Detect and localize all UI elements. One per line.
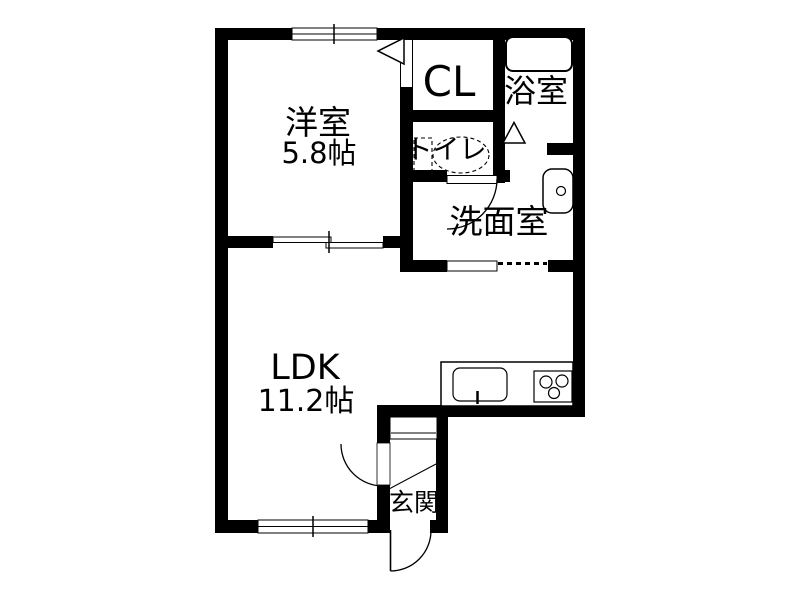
wall-closet-bottom xyxy=(413,110,493,122)
wall-bathroom-bottom xyxy=(547,143,585,155)
room-label-entrance: 玄関 xyxy=(389,488,439,517)
floorplan-canvas: 洋室 5.8帖 CL 浴室 トイレ 洗面室 LDK 11.2帖 玄関 xyxy=(0,0,800,600)
wall-washroom-bottom-left xyxy=(400,260,447,272)
outer-wall-right xyxy=(573,28,585,417)
outer-wall-left xyxy=(215,28,228,533)
bathtub-icon xyxy=(506,37,572,71)
kitchen-sink-icon xyxy=(453,368,507,404)
wall-toilet-bottom-right xyxy=(497,170,510,182)
gas-stove-icon xyxy=(534,371,572,402)
entrance-step-line xyxy=(389,464,436,489)
room-label-bathroom: 浴室 xyxy=(504,72,568,110)
wall-entrance-bottom-right xyxy=(430,520,448,533)
room-label-washroom: 洗面室 xyxy=(450,202,549,241)
ldk-window-icon xyxy=(258,516,368,537)
shoe-cabinet-icon xyxy=(390,417,437,439)
wall-western-corridor xyxy=(400,87,413,272)
entrance-door-icon xyxy=(390,520,431,571)
room-label-closet: CL xyxy=(423,57,476,106)
closet-folding-door-icon xyxy=(378,38,413,87)
room-area-ldk: 11.2帖 xyxy=(258,384,355,419)
washroom-sliding-door-icon xyxy=(447,261,547,271)
western-window-icon xyxy=(292,24,377,44)
wall-western-ldk-left xyxy=(215,236,273,248)
room-label-toilet: トイレ xyxy=(406,135,487,166)
floorplan-drawing: 洋室 5.8帖 CL 浴室 トイレ 洗面室 LDK 11.2帖 玄関 xyxy=(0,0,800,600)
western-sliding-door-icon xyxy=(273,231,383,253)
room-label-ldk: LDK xyxy=(270,348,340,388)
entrance-inner-door-icon xyxy=(341,443,390,486)
room-area-western: 5.8帖 xyxy=(281,136,356,170)
outer-wall-southeast xyxy=(377,405,585,417)
bathroom-folding-door-icon xyxy=(503,123,525,144)
wall-washroom-bottom-right xyxy=(548,260,585,272)
kitchen-counter-icon xyxy=(441,362,573,406)
wall-entrance-left-upper xyxy=(377,417,390,443)
